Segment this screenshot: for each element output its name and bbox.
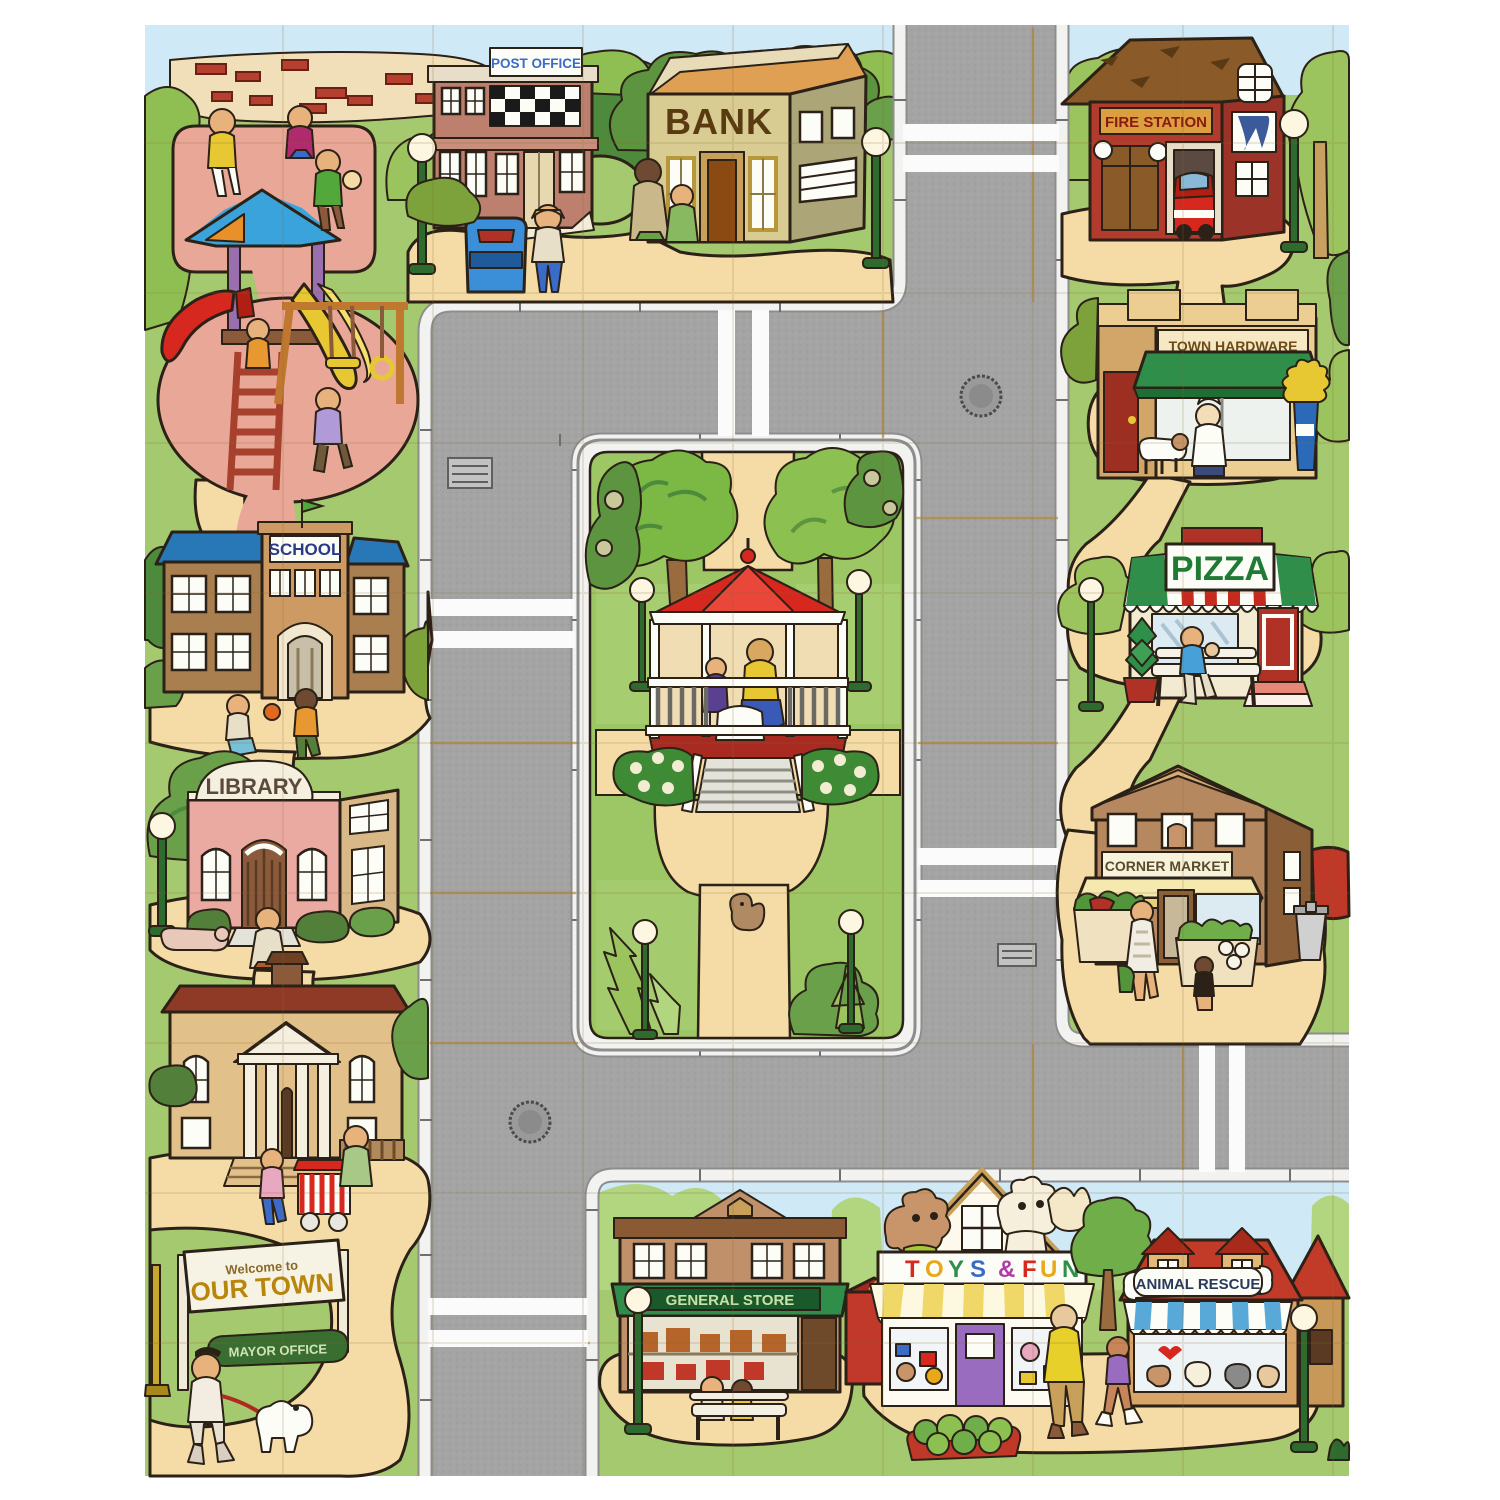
svg-text:F: F	[1022, 1256, 1037, 1283]
svg-text:GENERAL STORE: GENERAL STORE	[666, 1292, 795, 1309]
svg-text:S: S	[970, 1256, 986, 1283]
svg-text:FIRE STATION: FIRE STATION	[1105, 114, 1207, 131]
svg-text:ANIMAL RESCUE: ANIMAL RESCUE	[1136, 1276, 1261, 1293]
svg-text:CORNER MARKET: CORNER MARKET	[1105, 858, 1230, 874]
svg-text:LIBRARY: LIBRARY	[206, 774, 303, 799]
svg-text:PIZZA: PIZZA	[1171, 550, 1269, 588]
svg-text:SCHOOL: SCHOOL	[269, 540, 342, 559]
svg-text:T: T	[905, 1256, 920, 1283]
svg-text:Y: Y	[948, 1256, 964, 1283]
svg-text:U: U	[1040, 1256, 1057, 1283]
svg-text:&: &	[998, 1256, 1015, 1283]
svg-text:BANK: BANK	[665, 101, 773, 142]
svg-text:O: O	[925, 1256, 944, 1283]
svg-text:POST OFFICE: POST OFFICE	[491, 56, 581, 71]
